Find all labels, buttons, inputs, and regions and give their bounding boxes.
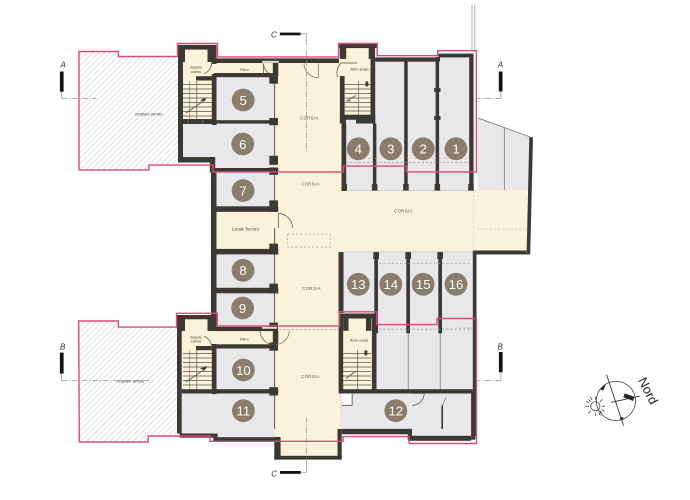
svg-text:Locale Tecnico: Locale Tecnico [232,227,260,232]
svg-text:CORSIA: CORSIA [301,181,320,186]
svg-text:CORSIA: CORSIA [302,286,321,291]
svg-text:B: B [60,343,66,352]
svg-text:2: 2 [420,142,427,157]
svg-text:CORSIA: CORSIA [394,209,413,214]
svg-text:11: 11 [237,404,251,419]
svg-text:B: B [498,343,504,352]
svg-text:A: A [60,61,66,70]
svg-text:Atrio scala: Atrio scala [350,338,369,343]
svg-text:16: 16 [449,277,464,292]
svg-text:Filtro: Filtro [240,67,249,72]
svg-text:Atrio scala: Atrio scala [350,66,369,71]
svg-text:7: 7 [239,183,246,198]
svg-text:1: 1 [452,142,459,157]
svg-text:calmo: calmo [191,69,201,74]
svg-text:12: 12 [388,404,403,419]
svg-text:10: 10 [236,363,251,378]
svg-text:8: 8 [239,263,246,278]
svg-text:C: C [271,469,277,478]
svg-text:9: 9 [239,301,246,316]
svg-text:vespaio aerato: vespaio aerato [135,112,163,117]
svg-text:6: 6 [239,137,246,152]
svg-text:Filtro: Filtro [240,337,249,342]
svg-text:3: 3 [387,142,394,157]
svg-text:15: 15 [416,277,431,292]
svg-text:CORSIA: CORSIA [301,374,320,379]
svg-text:5: 5 [240,93,247,108]
svg-text:A: A [497,61,503,70]
svg-text:4: 4 [355,142,362,157]
svg-text:vespaio aerato: vespaio aerato [117,379,145,384]
svg-text:13: 13 [351,277,366,292]
svg-text:CORSIA: CORSIA [300,116,319,121]
svg-text:C: C [271,30,277,39]
svg-text:calmo: calmo [191,339,201,344]
svg-text:14: 14 [383,277,398,292]
